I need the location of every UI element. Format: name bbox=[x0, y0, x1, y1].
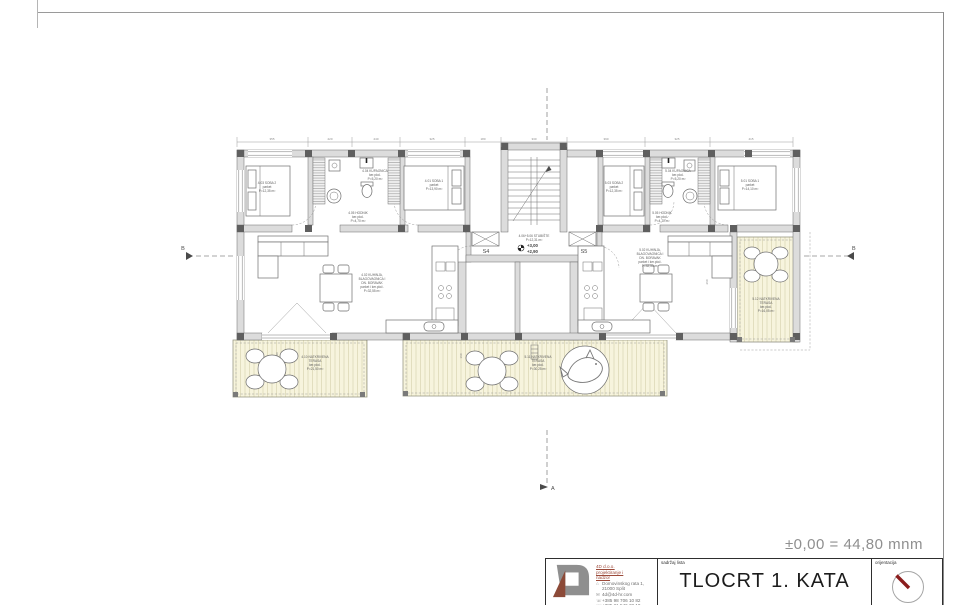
washing-machine-icon bbox=[683, 189, 697, 203]
sofa-right bbox=[668, 236, 732, 278]
title-block: 4D d.o.o. projektiranje i nadzor ⌂Domovi… bbox=[545, 558, 943, 605]
dim-label: 240 bbox=[373, 137, 378, 141]
section-b-left-arrow-icon bbox=[186, 252, 193, 260]
staircase bbox=[508, 157, 560, 225]
orientation-label: orijentacija bbox=[875, 560, 897, 565]
dim-label: 90 bbox=[275, 352, 279, 356]
svg-text:P=4,70 m²: P=4,70 m² bbox=[655, 219, 670, 223]
svg-text:P=16,05 m²: P=16,05 m² bbox=[758, 309, 775, 313]
svg-text:P=12,31 m²: P=12,31 m² bbox=[526, 238, 543, 242]
dim-label: 260 bbox=[705, 279, 709, 284]
section-b-left-label: B bbox=[181, 246, 185, 252]
company-info: 4D d.o.o. projektiranje i nadzor ⌂Domovi… bbox=[596, 562, 644, 605]
svg-text:P=12,35 m²: P=12,35 m² bbox=[259, 189, 276, 193]
kitchen-left bbox=[386, 246, 458, 333]
window bbox=[408, 150, 460, 157]
room-label-a5-hodnik: 5.05 HODNIK ker.ploč. P=4,70 m² bbox=[652, 211, 672, 223]
shaft-left bbox=[472, 232, 499, 246]
dining-table-right bbox=[640, 265, 672, 311]
entry-left-label: S4 bbox=[483, 249, 490, 255]
floor-plan-drawing: A B B bbox=[0, 0, 960, 605]
wardrobe bbox=[698, 158, 710, 204]
window bbox=[248, 150, 292, 157]
section-a-arrow-icon bbox=[540, 484, 548, 490]
wardrobe bbox=[650, 158, 662, 204]
dim-label: 390 bbox=[603, 137, 608, 141]
dim-label: 330 bbox=[531, 137, 536, 141]
svg-text:P=30,25 m²: P=30,25 m² bbox=[530, 367, 547, 371]
drawing-sheet: A B B bbox=[0, 0, 960, 605]
svg-text:P=5,20 m²: P=5,20 m² bbox=[671, 177, 686, 181]
dim-label: 180 bbox=[480, 137, 485, 141]
title-block-company-cell: 4D d.o.o. projektiranje i nadzor ⌂Domovi… bbox=[546, 559, 658, 605]
wardrobe bbox=[313, 158, 325, 204]
room-label-a4-dnevni: 4.02 KUHINJA, BLAGOVAONICA I DN. BORAVAK… bbox=[359, 273, 386, 293]
sliding-door bbox=[262, 333, 332, 340]
dim-label: 325 bbox=[674, 137, 679, 141]
dining-table-left bbox=[320, 265, 352, 311]
svg-text:P=32,55 m²: P=32,55 m² bbox=[364, 289, 381, 293]
dim-label: 415 bbox=[748, 137, 753, 141]
company-phone: +385 98 706 10 82 bbox=[602, 598, 640, 603]
bathroom-left-fixtures bbox=[327, 158, 373, 203]
window bbox=[237, 256, 244, 300]
svg-text:P=13,90 m²: P=13,90 m² bbox=[426, 187, 443, 191]
window bbox=[600, 150, 644, 157]
dim-label: 325 bbox=[429, 137, 434, 141]
wardrobe bbox=[388, 158, 400, 204]
company-email: 4d@4d-hr.com bbox=[602, 592, 632, 597]
sofa-left bbox=[258, 236, 328, 278]
level-marker-icon bbox=[518, 245, 524, 251]
level-upper-label: +3,00 bbox=[527, 243, 538, 248]
section-b-right-label: B bbox=[852, 246, 856, 252]
svg-text:P=4,70 m²: P=4,70 m² bbox=[351, 219, 366, 223]
section-b-right-arrow-icon bbox=[847, 252, 854, 260]
title-block-orientation-cell: orijentacija bbox=[872, 559, 942, 605]
sliding-door bbox=[730, 288, 737, 328]
washing-machine-icon bbox=[327, 189, 341, 203]
room-label-a5-kupaonica: 5.04 KUPAONICA ker.ploč. P=5,20 m² bbox=[665, 169, 692, 181]
svg-text:P=14,10 m²: P=14,10 m² bbox=[742, 187, 759, 191]
dim-label: 355 bbox=[269, 137, 274, 141]
room-label-a4-hodnik: 4.05 HODNIK ker.ploč. P=4,70 m² bbox=[348, 211, 368, 223]
shaft-right bbox=[569, 232, 596, 246]
dim-label: 220 bbox=[327, 137, 332, 141]
sheet-content-label: sadržaj lista bbox=[661, 560, 685, 565]
room-label-stubiste: 4.06+5.06 STUBIŠTE P=12,31 m² bbox=[519, 233, 550, 242]
svg-text:P=5,20 m²: P=5,20 m² bbox=[368, 177, 383, 181]
entry-right-label: S5 bbox=[581, 249, 588, 255]
room-label-a4-kupaonica: 4.04 KUPAONICA ker.ploč. P=5,20 m² bbox=[362, 169, 389, 181]
compass-icon bbox=[888, 567, 926, 605]
datum-note: ±0,00 = 44,80 mnm bbox=[785, 536, 923, 553]
window bbox=[237, 170, 244, 212]
company-street: Domovinskog rata 1, bbox=[602, 581, 644, 586]
title-block-title-cell: sadržaj lista TLOCRT 1. KATA bbox=[658, 559, 872, 605]
level-lower-label: +2,90 bbox=[527, 249, 538, 254]
sliding-door bbox=[606, 333, 676, 340]
window bbox=[793, 168, 800, 212]
company-logo-icon bbox=[550, 562, 592, 600]
section-a-label: A bbox=[551, 486, 555, 492]
svg-text:P=21,50 m²: P=21,50 m² bbox=[307, 367, 324, 371]
company-city: 21000 Split bbox=[602, 586, 625, 591]
dim-label: 160 bbox=[459, 353, 463, 358]
stair-direction-arrow-icon bbox=[546, 166, 552, 172]
svg-text:P=12,35 m²: P=12,35 m² bbox=[606, 189, 623, 193]
sheet-title: TLOCRT 1. KATA bbox=[658, 570, 871, 593]
svg-text:P=32,55 m²: P=32,55 m² bbox=[642, 264, 659, 268]
